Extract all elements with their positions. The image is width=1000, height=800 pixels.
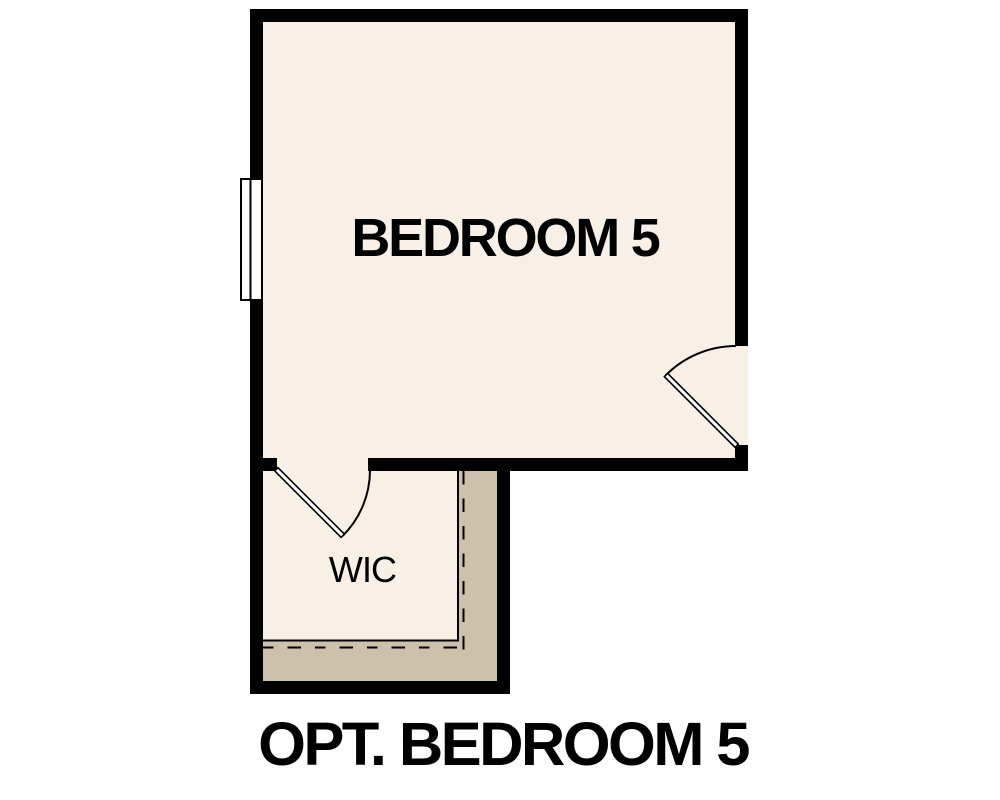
svg-text:BEDROOM 5: BEDROOM 5 xyxy=(351,208,659,268)
svg-text:WIC: WIC xyxy=(329,549,396,590)
svg-text:OPT. BEDROOM 5: OPT. BEDROOM 5 xyxy=(258,710,749,779)
